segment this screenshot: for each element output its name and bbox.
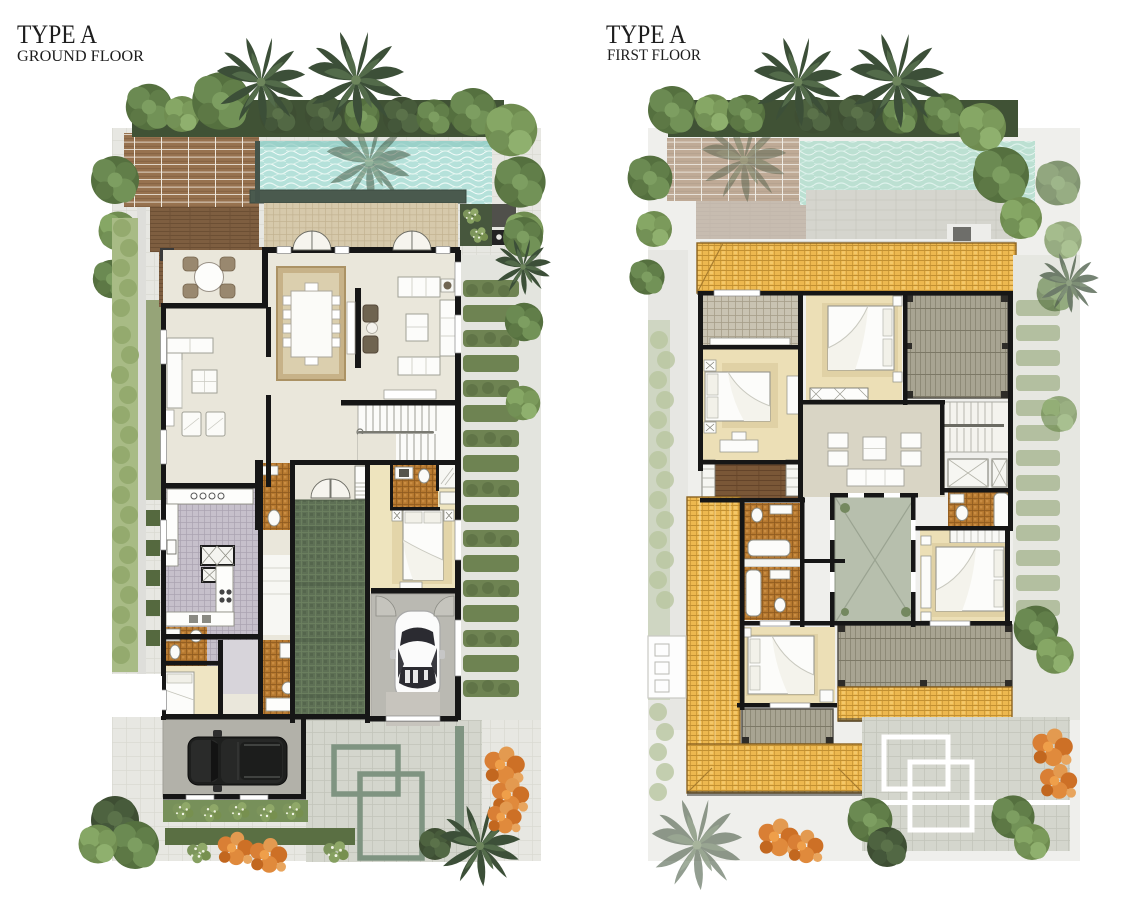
svg-text:FIRST FLOOR: FIRST FLOOR	[607, 47, 702, 64]
svg-text:TYPE A: TYPE A	[17, 20, 97, 49]
svg-text:TYPE A: TYPE A	[606, 20, 686, 49]
svg-text:GROUND FLOOR: GROUND FLOOR	[17, 48, 145, 65]
